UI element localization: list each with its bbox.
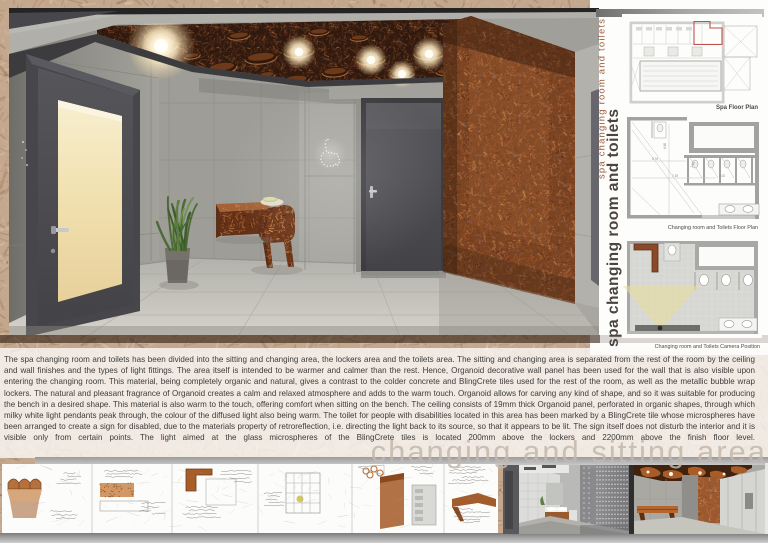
svg-text:6.60: 6.60 — [663, 143, 667, 149]
svg-text:7.19: 7.19 — [672, 174, 678, 178]
svg-text:4.02: 4.02 — [719, 174, 725, 178]
svg-text:5.76: 5.76 — [652, 157, 658, 161]
